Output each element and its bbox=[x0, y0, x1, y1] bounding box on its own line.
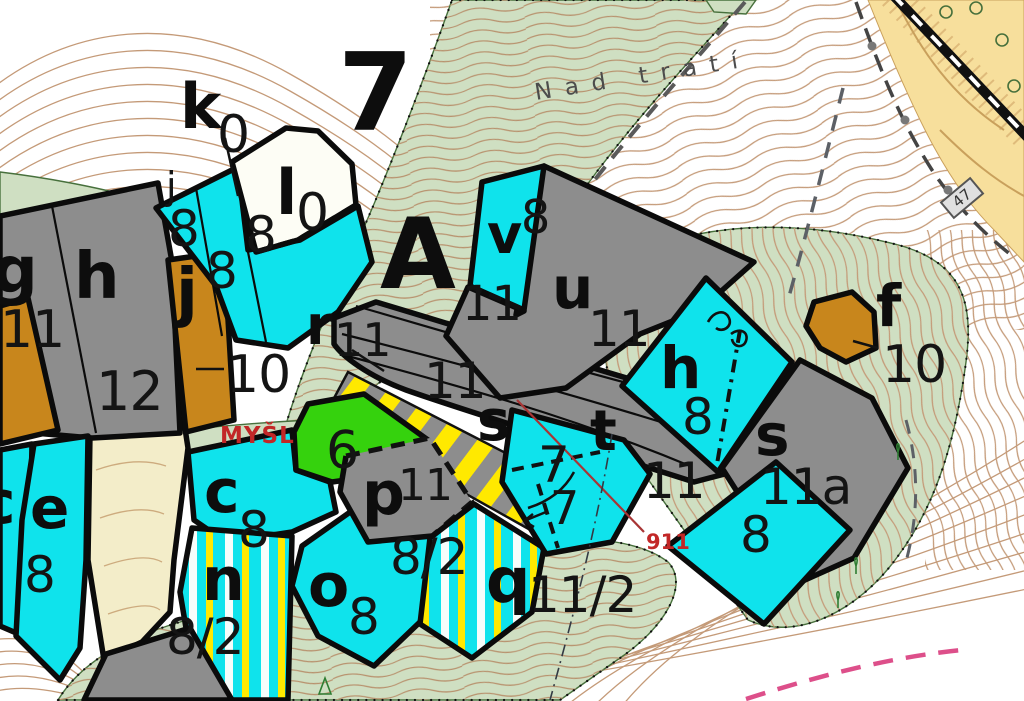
parcel-sroad-letter: s bbox=[477, 389, 510, 454]
region-number-label: 7 bbox=[338, 31, 413, 156]
parcel-r-value: 11 bbox=[334, 313, 391, 367]
parcel-stripe-value: 8/2 bbox=[390, 528, 467, 586]
parcel-o-value: 8 bbox=[348, 588, 379, 646]
parcel-seast-value: 11a bbox=[760, 458, 851, 516]
parcel-top8-right-value: 8 bbox=[245, 206, 276, 264]
parcel-8se-value: 8 bbox=[740, 506, 771, 564]
parcel-7-lower-value: 7 bbox=[550, 481, 578, 535]
road-lower-value: 11 bbox=[643, 452, 705, 510]
parcel-cpartial-letter: c bbox=[0, 468, 16, 538]
parcel-h-letter: h bbox=[74, 240, 120, 314]
parcel-l-letter: l bbox=[276, 156, 297, 229]
parcel-l-value: 0 bbox=[296, 183, 328, 243]
parcel-v-letter: v bbox=[487, 203, 522, 266]
post-dot-icon bbox=[868, 42, 877, 51]
ref-911-label: 911 bbox=[646, 530, 690, 554]
parcel-g-letter: g bbox=[0, 234, 38, 308]
parcel-q-letter: q bbox=[486, 544, 530, 617]
parcel-q-value: 11/2 bbox=[528, 566, 636, 624]
parcel-v-value: 8 bbox=[521, 190, 549, 244]
parcel-k-value: 0 bbox=[217, 105, 249, 165]
parcel-jtop-value: 8 bbox=[168, 200, 199, 258]
forestry-map-viewport[interactable]: 47 bbox=[0, 0, 1024, 701]
parcel-p-value: 11 bbox=[398, 460, 452, 511]
parcel-heast-value: 8 bbox=[682, 388, 713, 446]
parcel-j-value: 10 bbox=[226, 345, 290, 405]
forestry-map-canvas[interactable]: 47 bbox=[0, 0, 1024, 701]
parcel-c-letter: c bbox=[204, 457, 240, 527]
post-dot-icon bbox=[901, 116, 910, 125]
place-name-partial-label: MYŠL bbox=[220, 421, 295, 449]
parcel-vsub-value: 11 bbox=[462, 276, 521, 332]
parcel-6-value: 6 bbox=[326, 421, 358, 481]
parcel-f-value: 10 bbox=[882, 335, 946, 395]
parcel-g-value: 11 bbox=[0, 300, 64, 360]
section-letter-label: A bbox=[380, 198, 456, 312]
parcel-t-letter: t bbox=[590, 399, 617, 464]
parcel-top8-mid-value: 8 bbox=[206, 242, 237, 300]
parcel-h-value: 12 bbox=[96, 360, 163, 423]
parcel-u-value: 11 bbox=[588, 300, 650, 358]
parcel-n-value: 8/2 bbox=[166, 608, 243, 666]
parcel-r-letter: r bbox=[306, 294, 333, 357]
parcel-j-letter: j bbox=[173, 256, 198, 330]
parcel-e-value: 8 bbox=[24, 546, 55, 604]
parcel-n-letter: n bbox=[202, 545, 245, 615]
parcel-e-letter: e bbox=[30, 474, 69, 542]
parcel-f-letter: f bbox=[876, 272, 902, 340]
parcel-o-letter: o bbox=[308, 551, 349, 621]
